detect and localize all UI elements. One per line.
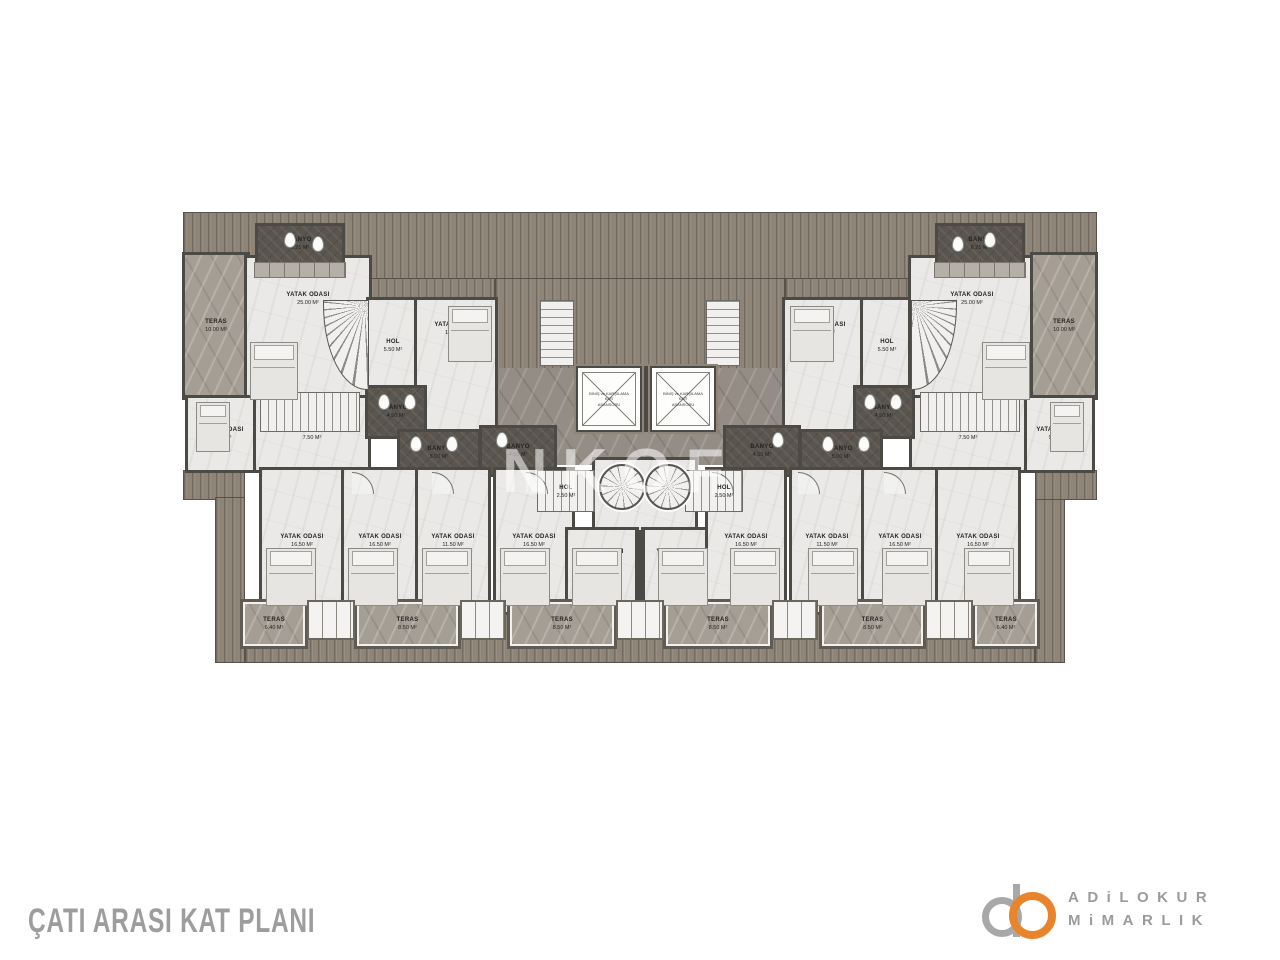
bed-blanket-line bbox=[503, 573, 547, 574]
bed-blanket-line bbox=[351, 573, 395, 574]
room-area: 8.50 M² bbox=[709, 625, 728, 632]
bed-pillow bbox=[200, 405, 226, 417]
room-area: 25.00 M² bbox=[297, 300, 319, 307]
bed-blanket-line bbox=[425, 573, 469, 574]
room-name: HOL bbox=[386, 339, 400, 347]
room-teras-b2: TERAS8.50 M² bbox=[357, 602, 458, 646]
bed-fixture bbox=[448, 306, 492, 362]
room-area: 5.00 M² bbox=[430, 454, 449, 461]
room-teras-b4: TERAS8.50 M² bbox=[666, 602, 770, 646]
bed-blanket-line bbox=[451, 330, 489, 331]
room-name: YATAK ODASI bbox=[431, 534, 474, 542]
room-area: 5.50 M² bbox=[878, 347, 897, 354]
roof-hatch-section bbox=[1035, 470, 1097, 500]
elevator-text: BİNİŞ ve KARŞILAMAKATIASANSÖRÜ bbox=[578, 368, 640, 430]
wc-fixture bbox=[404, 394, 416, 410]
bed-fixture bbox=[964, 548, 1014, 606]
wc-fixture bbox=[312, 236, 324, 252]
room-banyo-top-right: BANYO6.25 M² bbox=[938, 226, 1022, 262]
bed-blanket-line bbox=[199, 423, 227, 424]
bed-pillow bbox=[254, 345, 294, 360]
bed-pillow bbox=[426, 551, 468, 566]
room-banyo-top-left: BANYO6.25 M² bbox=[258, 226, 342, 262]
room-name: YATAK ODASI bbox=[358, 534, 401, 542]
room-area: 8.50 M² bbox=[553, 625, 572, 632]
bed-pillow bbox=[504, 551, 546, 566]
room-area: 4.50 M² bbox=[387, 413, 406, 420]
elevator-text: BİNİŞ ve KARŞILAMAKATIASANSÖRÜ bbox=[652, 368, 714, 430]
room-label: BANYO6.25 M² bbox=[938, 226, 1022, 262]
room-hol-top-left: HOL5.50 M² bbox=[369, 300, 417, 392]
room-label: TERAS8.50 M² bbox=[512, 604, 612, 644]
room-area: 7.50 M² bbox=[959, 435, 978, 442]
bed-pillow bbox=[352, 551, 394, 566]
room-area: 4.50 M² bbox=[753, 452, 772, 459]
stair-v-fixture bbox=[540, 300, 574, 366]
roof-hatch-section bbox=[1035, 497, 1065, 663]
brand-name-line2: MiMARLIK bbox=[1068, 912, 1211, 929]
room-label: HOL5.50 M² bbox=[863, 300, 911, 392]
room-teras-right: TERAS10.00 M² bbox=[1033, 255, 1095, 397]
wc-fixture bbox=[822, 436, 834, 452]
bed-fixture bbox=[730, 548, 780, 606]
roof-hatch-section bbox=[369, 278, 495, 300]
bed-pillow bbox=[986, 345, 1026, 360]
bed-pillow bbox=[662, 551, 704, 566]
brand-name-line1: ADiLOKUR bbox=[1068, 889, 1215, 906]
bed-fixture bbox=[1050, 402, 1084, 452]
wc-fixture bbox=[858, 436, 870, 452]
room-banyo-right-a: BANYO4.50 M² bbox=[856, 388, 912, 436]
bay-fixture bbox=[616, 600, 664, 640]
bed-fixture bbox=[348, 548, 398, 606]
wc-fixture bbox=[772, 432, 784, 448]
room-area: 4.50 M² bbox=[875, 413, 894, 420]
room-teras-b5: TERAS8.50 M² bbox=[822, 602, 923, 646]
wc-fixture bbox=[378, 394, 390, 410]
bed-blanket-line bbox=[811, 573, 855, 574]
room-hol-top-right: HOL5.50 M² bbox=[863, 300, 911, 392]
room-area: 10.00 M² bbox=[205, 327, 227, 334]
bed-fixture bbox=[790, 306, 834, 362]
roof-hatch-section bbox=[215, 497, 245, 663]
room-area: 6.40 M² bbox=[997, 625, 1016, 632]
room-name: TERAS bbox=[551, 617, 573, 625]
room-name: TERAS bbox=[995, 617, 1017, 625]
elevator-fixture: BİNİŞ ve KARŞILAMAKATIASANSÖRÜ bbox=[576, 366, 642, 432]
bay-fixture bbox=[925, 600, 973, 640]
bed-blanket-line bbox=[575, 573, 619, 574]
room-area: 7.50 M² bbox=[303, 435, 322, 442]
room-name: YATAK ODASI bbox=[724, 534, 767, 542]
room-label: BANYO6.25 M² bbox=[258, 226, 342, 262]
bed-pillow bbox=[734, 551, 776, 566]
bed-pillow bbox=[794, 309, 830, 323]
room-name: TERAS bbox=[397, 617, 419, 625]
bed-fixture bbox=[250, 342, 298, 400]
stair-v-fixture bbox=[706, 300, 740, 366]
bed-pillow bbox=[1054, 405, 1080, 417]
bed-fixture bbox=[196, 402, 230, 452]
wc-fixture bbox=[410, 436, 422, 452]
room-area: 6.40 M² bbox=[265, 625, 284, 632]
room-name: YATAK ODASI bbox=[512, 534, 555, 542]
room-name: BANYO bbox=[750, 444, 773, 452]
room-name: TERAS bbox=[862, 617, 884, 625]
bed-pillow bbox=[886, 551, 928, 566]
bed-fixture bbox=[500, 548, 550, 606]
room-name: TERAS bbox=[1053, 319, 1075, 327]
room-area: 5.50 M² bbox=[384, 347, 403, 354]
roof-hatch-section bbox=[495, 278, 785, 370]
roof-hatch-section bbox=[183, 470, 245, 500]
room-label: TERAS10.00 M² bbox=[1033, 255, 1095, 397]
plan-title: ÇATI ARASI KAT PLANI bbox=[28, 902, 315, 941]
bed-fixture bbox=[882, 548, 932, 606]
room-name: YATAK ODASI bbox=[950, 292, 993, 300]
room-name: TERAS bbox=[707, 617, 729, 625]
room-area: 25.00 M² bbox=[961, 300, 983, 307]
wardrobe-fixture bbox=[254, 262, 346, 278]
room-label: TERAS6.40 M² bbox=[245, 604, 303, 644]
bed-blanket-line bbox=[733, 573, 777, 574]
bay-fixture bbox=[772, 600, 818, 640]
room-name: YATAK ODASI bbox=[280, 534, 323, 542]
bed-blanket-line bbox=[253, 367, 295, 368]
room-label: TERAS8.50 M² bbox=[668, 604, 768, 644]
room-name: HOL bbox=[880, 339, 894, 347]
room-area: 5.00 M² bbox=[832, 454, 851, 461]
bed-blanket-line bbox=[661, 573, 705, 574]
room-banyo-left-a: BANYO4.50 M² bbox=[368, 388, 424, 436]
room-teras-b3: TERAS8.50 M² bbox=[510, 602, 614, 646]
bed-fixture bbox=[572, 548, 622, 606]
room-teras-b1: TERAS6.40 M² bbox=[243, 602, 305, 646]
bed-blanket-line bbox=[985, 367, 1027, 368]
wall-fixture bbox=[642, 366, 650, 432]
bed-blanket-line bbox=[967, 573, 1011, 574]
bed-blanket-line bbox=[793, 330, 831, 331]
bed-blanket-line bbox=[885, 573, 929, 574]
bed-pillow bbox=[812, 551, 854, 566]
room-label: BANYO4.50 M² bbox=[368, 388, 424, 436]
roof-hatch-section bbox=[785, 278, 911, 300]
elevator-text-line: ASANSÖRÜ bbox=[672, 402, 694, 407]
wc-fixture bbox=[890, 394, 902, 410]
bed-fixture bbox=[658, 548, 708, 606]
bed-fixture bbox=[422, 548, 472, 606]
wc-fixture bbox=[864, 394, 876, 410]
wc-fixture bbox=[446, 436, 458, 452]
elevator-fixture: BİNİŞ ve KARŞILAMAKATIASANSÖRÜ bbox=[650, 366, 716, 432]
room-label: BANYO4.50 M² bbox=[856, 388, 912, 436]
room-teras-left: TERAS10.00 M² bbox=[185, 255, 247, 397]
room-name: YATAK ODASI bbox=[805, 534, 848, 542]
room-label: TERAS8.50 M² bbox=[359, 604, 456, 644]
room-area: 8.50 M² bbox=[863, 625, 882, 632]
room-label: TERAS8.50 M² bbox=[824, 604, 921, 644]
room-area: 8.50 M² bbox=[398, 625, 417, 632]
bay-fixture bbox=[307, 600, 355, 640]
bed-pillow bbox=[968, 551, 1010, 566]
room-name: YATAK ODASI bbox=[956, 534, 999, 542]
logo-orange-circle-icon bbox=[1009, 892, 1056, 939]
wc-fixture bbox=[984, 232, 996, 248]
bed-fixture bbox=[982, 342, 1030, 400]
bed-pillow bbox=[452, 309, 488, 323]
bed-fixture bbox=[266, 548, 316, 606]
bed-blanket-line bbox=[269, 573, 313, 574]
room-name: YATAK ODASI bbox=[878, 534, 921, 542]
watermark: NKOF bbox=[502, 436, 738, 507]
room-label: HOL5.50 M² bbox=[369, 300, 417, 392]
bay-fixture bbox=[460, 600, 506, 640]
bed-pillow bbox=[576, 551, 618, 566]
bed-pillow bbox=[270, 551, 312, 566]
bed-blanket-line bbox=[1053, 423, 1081, 424]
room-name: TERAS bbox=[263, 617, 285, 625]
room-name: TERAS bbox=[205, 319, 227, 327]
room-label: TERAS6.40 M² bbox=[977, 604, 1035, 644]
bed-fixture bbox=[808, 548, 858, 606]
wc-fixture bbox=[284, 232, 296, 248]
wc-fixture bbox=[952, 236, 964, 252]
floor-plan-canvas: TERAS10.00 M²YATAK ODASI25.00 M²BANYO6.2… bbox=[0, 0, 1280, 960]
room-name: YATAK ODASI bbox=[286, 292, 329, 300]
room-label: TERAS10.00 M² bbox=[185, 255, 247, 397]
wardrobe-fixture bbox=[934, 262, 1026, 278]
room-teras-b6: TERAS6.40 M² bbox=[975, 602, 1037, 646]
room-area: 10.00 M² bbox=[1053, 327, 1075, 334]
elevator-text-line: ASANSÖRÜ bbox=[598, 402, 620, 407]
